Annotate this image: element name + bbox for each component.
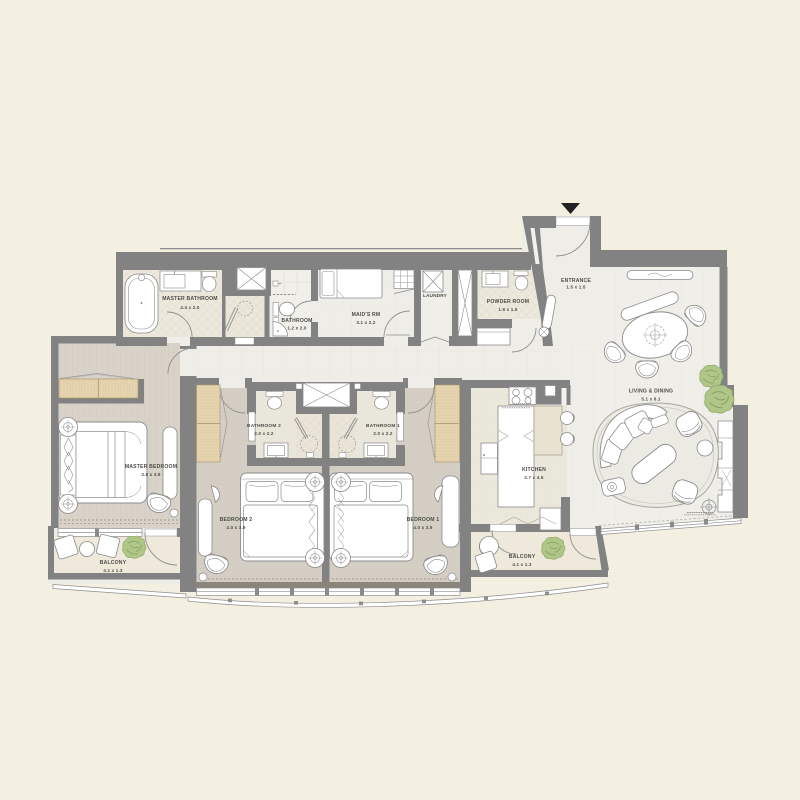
svg-text:BATHROOM: BATHROOM: [281, 318, 312, 324]
svg-text:BALCONY: BALCONY: [509, 554, 536, 560]
svg-text:4.0 x 3.9: 4.0 x 3.9: [413, 525, 432, 530]
svg-text:BEDROOM 1: BEDROOM 1: [407, 517, 440, 523]
svg-text:LAUNDRY: LAUNDRY: [423, 293, 447, 298]
svg-text:BATHROOM 1: BATHROOM 1: [366, 423, 400, 429]
svg-text:MASTER BEDROOM: MASTER BEDROOM: [125, 464, 177, 470]
svg-text:BALCONY: BALCONY: [100, 560, 127, 566]
svg-text:3.8 x 3.9: 3.8 x 3.9: [141, 472, 160, 477]
svg-text:1.9 x 1.5: 1.9 x 1.5: [498, 307, 517, 312]
svg-text:3.1 x 2.2: 3.1 x 2.2: [356, 320, 375, 325]
svg-text:2.7 x 4.5: 2.7 x 4.5: [524, 475, 543, 480]
svg-text:BATHROOM 2: BATHROOM 2: [247, 423, 281, 429]
svg-text:1.2 x 2.0: 1.2 x 2.0: [287, 326, 306, 331]
svg-text:4.4 x 2.0: 4.4 x 2.0: [180, 305, 199, 310]
svg-text:MAID'S RM: MAID'S RM: [352, 312, 381, 318]
svg-text:2.0 x 2.2: 2.0 x 2.2: [373, 431, 392, 436]
svg-text:POWDER ROOM: POWDER ROOM: [487, 299, 529, 305]
svg-text:2.0 x 2.2: 2.0 x 2.2: [254, 431, 273, 436]
svg-text:1.5 x 1.5: 1.5 x 1.5: [566, 285, 585, 290]
svg-text:MASTER BATHROOM: MASTER BATHROOM: [162, 296, 218, 302]
svg-text:KITCHEN: KITCHEN: [522, 467, 546, 473]
svg-text:ENTRANCE: ENTRANCE: [561, 278, 591, 284]
svg-text:LIVING & DINING: LIVING & DINING: [629, 389, 673, 395]
svg-text:4.0 x 3.9: 4.0 x 3.9: [226, 525, 245, 530]
svg-text:5.1 x 8.1: 5.1 x 8.1: [641, 397, 660, 402]
svg-text:4.1 x 1.3: 4.1 x 1.3: [512, 562, 531, 567]
svg-text:BEDROOM 2: BEDROOM 2: [220, 517, 253, 523]
svg-text:4.1 x 1.3: 4.1 x 1.3: [103, 568, 122, 573]
